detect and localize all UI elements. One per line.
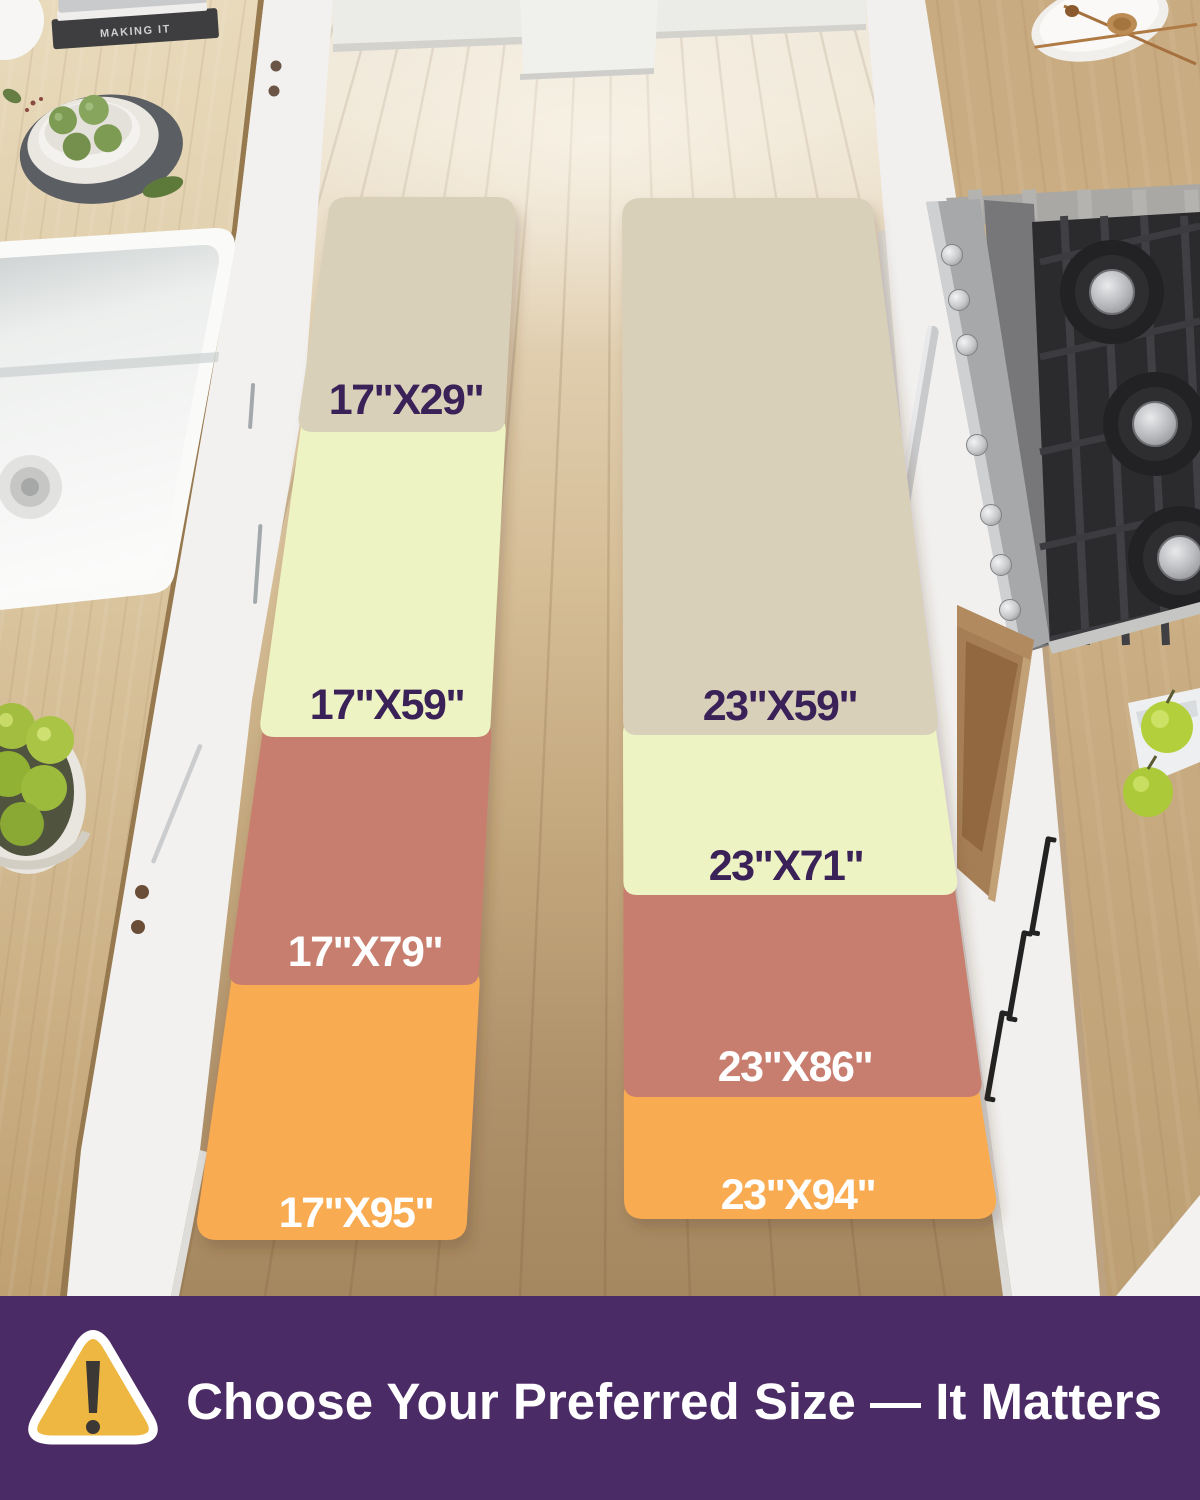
svg-text:17"X59": 17"X59" bbox=[310, 681, 465, 729]
svg-text:23"X94": 23"X94" bbox=[721, 1171, 876, 1219]
svg-text:23"X59": 23"X59" bbox=[703, 682, 858, 730]
svg-text:17"X95": 17"X95" bbox=[279, 1189, 434, 1237]
svg-text:17"X79": 17"X79" bbox=[288, 928, 443, 976]
svg-text:23"X71": 23"X71" bbox=[709, 842, 864, 890]
svg-text:Choose Your Preferred Size — I: Choose Your Preferred Size — It Matters bbox=[186, 1373, 1162, 1430]
svg-text:23"X86": 23"X86" bbox=[718, 1043, 873, 1091]
svg-text:17"X29": 17"X29" bbox=[329, 376, 484, 424]
